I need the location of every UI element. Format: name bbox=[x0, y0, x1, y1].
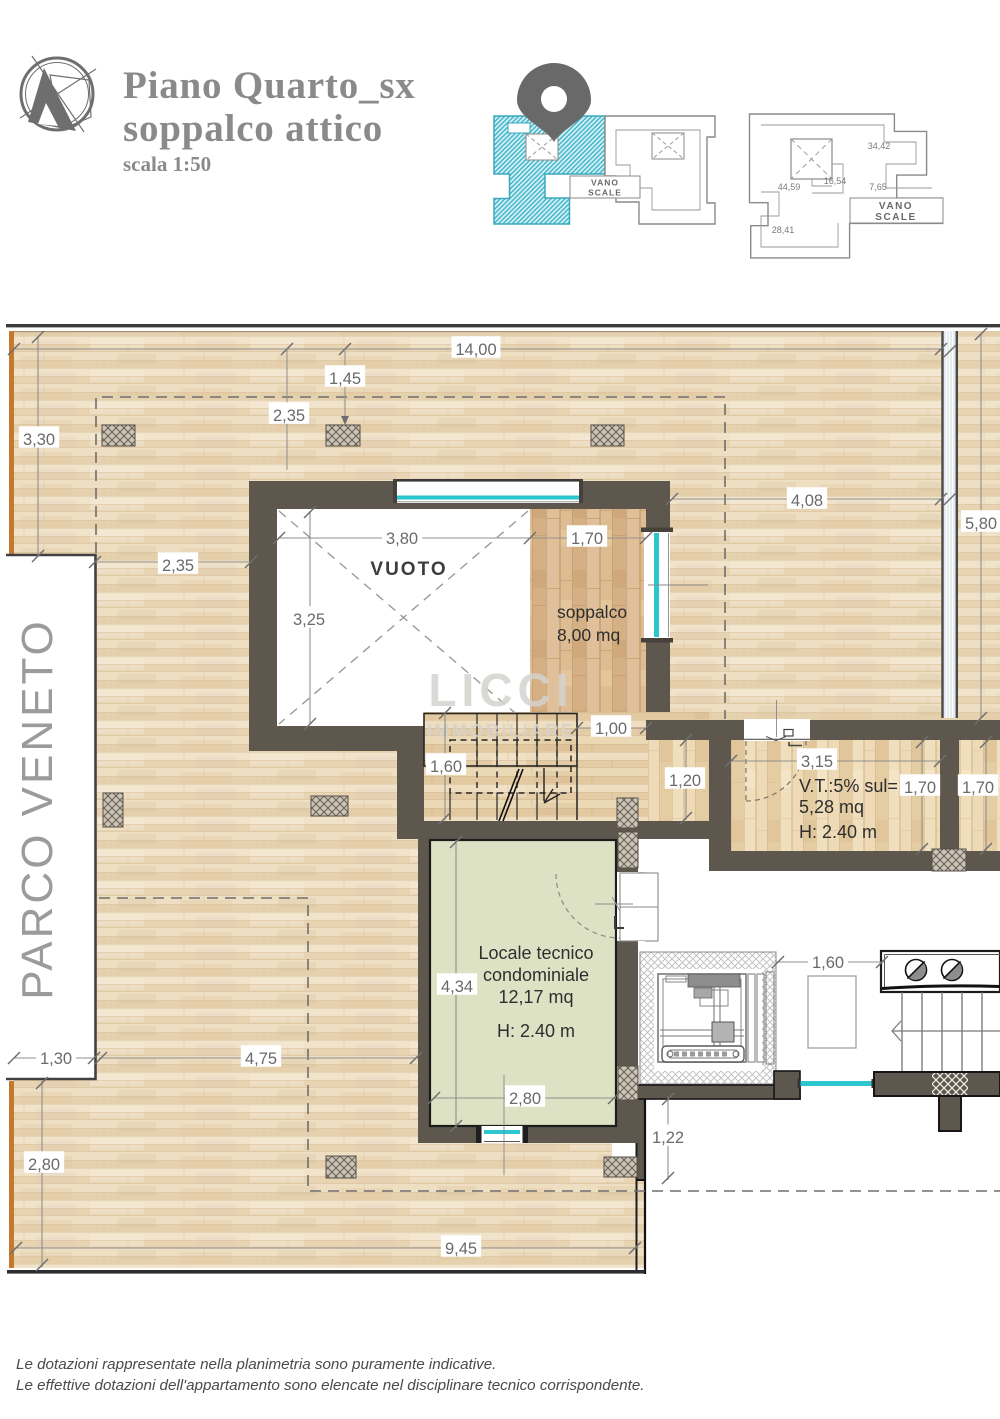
svg-text:VUOTO: VUOTO bbox=[370, 559, 447, 580]
svg-text:5,80: 5,80 bbox=[965, 515, 997, 533]
svg-text:8,00 mq: 8,00 mq bbox=[557, 625, 620, 645]
svg-text:2,35: 2,35 bbox=[273, 407, 305, 425]
svg-text:5,28 mq: 5,28 mq bbox=[799, 797, 864, 817]
svg-text:1,22: 1,22 bbox=[652, 1129, 684, 1147]
svg-text:3,25: 3,25 bbox=[293, 611, 325, 629]
svg-text:Le dotazioni rappresentate nel: Le dotazioni rappresentate nella planime… bbox=[16, 1356, 496, 1373]
svg-text:2,80: 2,80 bbox=[28, 1156, 60, 1174]
svg-text:2,80: 2,80 bbox=[509, 1090, 541, 1108]
svg-text:PARCO VENETO: PARCO VENETO bbox=[13, 618, 62, 1000]
svg-text:1,30: 1,30 bbox=[40, 1050, 72, 1068]
svg-text:1,70: 1,70 bbox=[571, 530, 603, 548]
svg-text:3,80: 3,80 bbox=[386, 530, 418, 548]
svg-text:14,00: 14,00 bbox=[455, 341, 496, 359]
svg-text:Locale tecnico: Locale tecnico bbox=[478, 943, 593, 963]
svg-text:VANO: VANO bbox=[591, 178, 619, 188]
svg-text:4,34: 4,34 bbox=[441, 978, 473, 996]
svg-text:H: 2.40 m: H: 2.40 m bbox=[497, 1021, 575, 1041]
svg-text:3,15: 3,15 bbox=[801, 753, 833, 771]
svg-text:IMMOBILIARE: IMMOBILIARE bbox=[427, 720, 576, 741]
svg-text:V.T.:5% sul=: V.T.:5% sul= bbox=[799, 776, 898, 796]
svg-text:2,35: 2,35 bbox=[162, 557, 194, 575]
svg-text:soppalco: soppalco bbox=[557, 602, 627, 622]
svg-text:12,17 mq: 12,17 mq bbox=[498, 987, 573, 1007]
svg-text:28,41: 28,41 bbox=[772, 225, 795, 235]
svg-text:Le effettive dotazioni dell'ap: Le effettive dotazioni dell'appartamento… bbox=[16, 1377, 645, 1394]
svg-text:34,42: 34,42 bbox=[868, 141, 891, 151]
svg-text:soppalco attico: soppalco attico bbox=[123, 107, 383, 150]
svg-text:44,59: 44,59 bbox=[778, 182, 801, 192]
svg-text:3,30: 3,30 bbox=[23, 431, 55, 449]
svg-text:16,54: 16,54 bbox=[824, 176, 847, 186]
svg-text:SCALE: SCALE bbox=[875, 212, 916, 223]
svg-text:1,00: 1,00 bbox=[595, 720, 627, 738]
svg-text:1,60: 1,60 bbox=[430, 758, 462, 776]
svg-text:1,45: 1,45 bbox=[329, 370, 361, 388]
svg-text:H: 2.40 m: H: 2.40 m bbox=[799, 822, 877, 842]
svg-text:VANO: VANO bbox=[879, 201, 913, 212]
svg-text:SCALE: SCALE bbox=[588, 188, 622, 198]
svg-text:Piano Quarto_sx: Piano Quarto_sx bbox=[123, 64, 416, 107]
svg-text:1,70: 1,70 bbox=[904, 779, 936, 797]
svg-text:1,20: 1,20 bbox=[669, 772, 701, 790]
svg-text:scala 1:50: scala 1:50 bbox=[123, 152, 211, 176]
svg-text:9,45: 9,45 bbox=[445, 1240, 477, 1258]
svg-text:4,08: 4,08 bbox=[791, 492, 823, 510]
svg-text:4,75: 4,75 bbox=[245, 1050, 277, 1068]
svg-text:condominiale: condominiale bbox=[483, 965, 589, 985]
svg-text:1,60: 1,60 bbox=[812, 954, 844, 972]
svg-text:7,65: 7,65 bbox=[869, 182, 887, 192]
svg-text:1,70: 1,70 bbox=[962, 779, 994, 797]
